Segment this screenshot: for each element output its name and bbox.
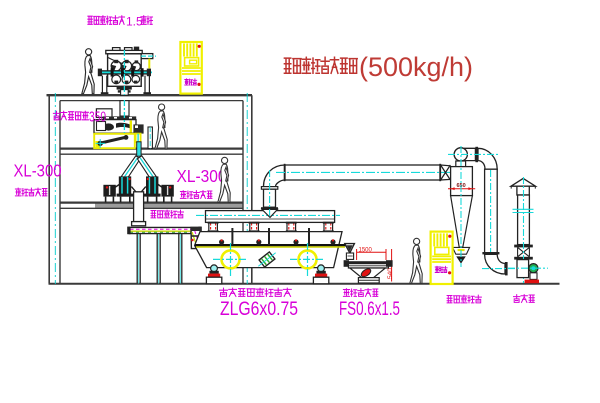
svg-text:540: 540	[387, 268, 394, 279]
svg-text:(500kg/h): (500kg/h)	[359, 52, 473, 82]
svg-text:350: 350	[89, 110, 106, 126]
svg-text:1500: 1500	[359, 247, 373, 253]
svg-text:ZLG6x0.75: ZLG6x0.75	[220, 299, 298, 320]
svg-text:FS0.6x1.5: FS0.6x1.5	[339, 299, 400, 320]
svg-text:XL-300: XL-300	[177, 166, 227, 186]
svg-text:XL-300: XL-300	[14, 161, 62, 181]
